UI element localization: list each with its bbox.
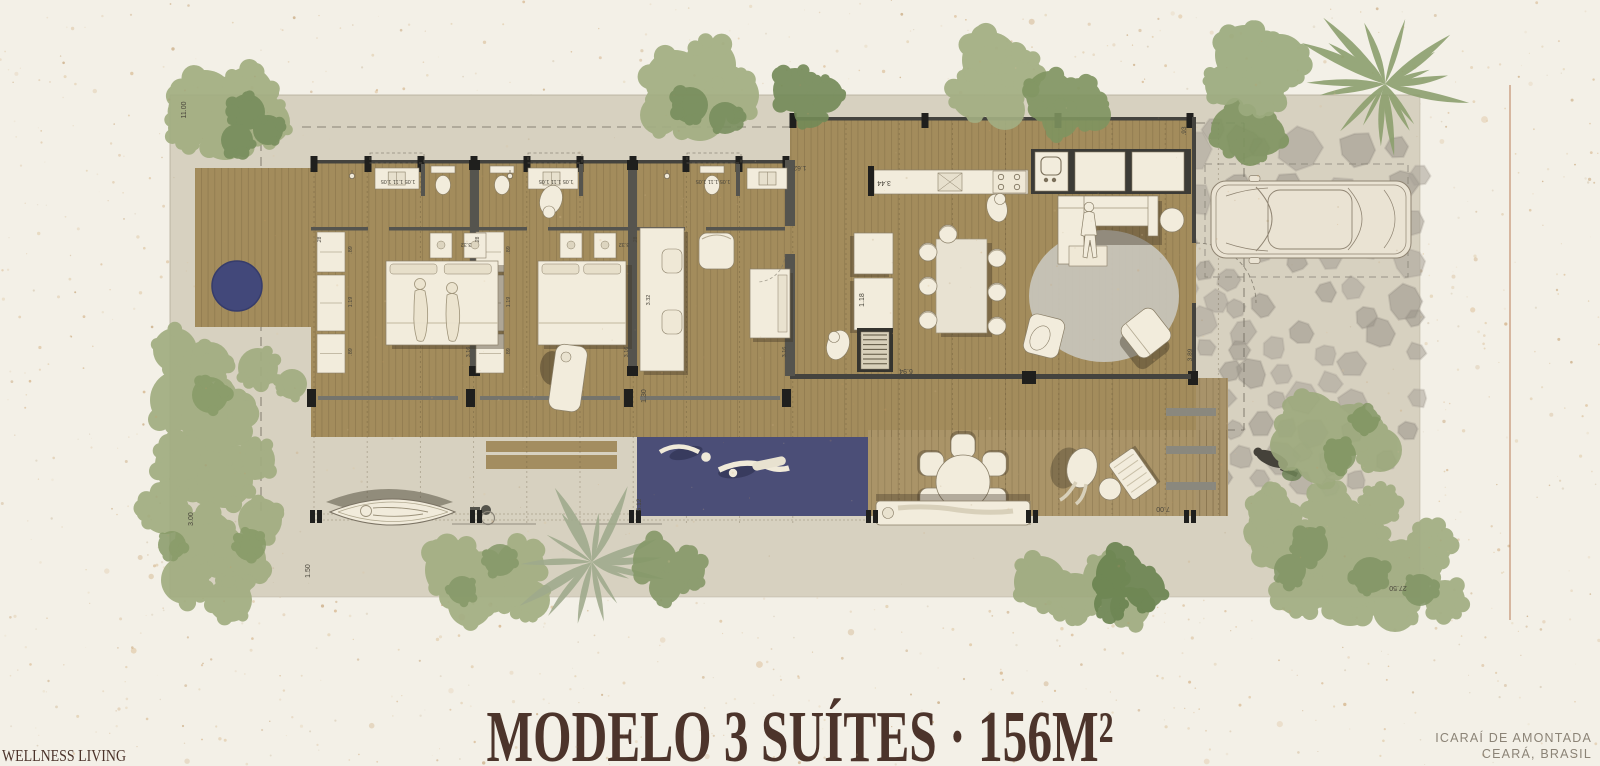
svg-text:CEARÁ, BRASIL: CEARÁ, BRASIL bbox=[1482, 746, 1592, 761]
svg-text:3.16: 3.16 bbox=[466, 347, 472, 358]
svg-text:ICARAÍ DE AMONTADA: ICARAÍ DE AMONTADA bbox=[1435, 730, 1592, 745]
svg-text:1.62: 1.62 bbox=[793, 164, 806, 171]
svg-text:1.30: 1.30 bbox=[641, 389, 648, 403]
svg-text:3.16: 3.16 bbox=[782, 347, 788, 358]
svg-text:.89: .89 bbox=[506, 348, 512, 356]
svg-text:1.18: 1.18 bbox=[859, 293, 866, 307]
svg-text:11.00: 11.00 bbox=[181, 101, 188, 118]
svg-text:1.05 1.11 1.05: 1.05 1.11 1.05 bbox=[539, 178, 574, 184]
svg-text:1.19: 1.19 bbox=[348, 297, 354, 308]
svg-text:3.44: 3.44 bbox=[877, 179, 891, 186]
svg-text:.89: .89 bbox=[348, 246, 354, 254]
svg-text:.28: .28 bbox=[475, 236, 481, 243]
svg-text:.28: .28 bbox=[317, 236, 323, 243]
svg-text:1.50: 1.50 bbox=[305, 564, 312, 578]
svg-text:3.32: 3.32 bbox=[619, 241, 630, 247]
svg-text:1.05 1.11 1.05: 1.05 1.11 1.05 bbox=[381, 178, 416, 184]
svg-text:MODELO 3 SUÍTES · 156M²: MODELO 3 SUÍTES · 156M² bbox=[487, 696, 1114, 766]
svg-text:1.19: 1.19 bbox=[506, 297, 512, 308]
svg-text:1.05 1.11 1.05: 1.05 1.11 1.05 bbox=[696, 178, 731, 184]
svg-text:3.00: 3.00 bbox=[188, 512, 195, 526]
svg-text:5.12: 5.12 bbox=[636, 498, 643, 511]
svg-text:.93: .93 bbox=[1181, 126, 1188, 135]
svg-text:3.32: 3.32 bbox=[646, 295, 652, 306]
svg-text:.28: .28 bbox=[633, 236, 639, 243]
svg-text:3.16: 3.16 bbox=[624, 347, 630, 358]
svg-text:.89: .89 bbox=[506, 246, 512, 254]
svg-text:WELLNESS LIVING: WELLNESS LIVING bbox=[2, 746, 126, 765]
svg-text:7.00: 7.00 bbox=[1156, 505, 1170, 512]
svg-text:.89: .89 bbox=[348, 348, 354, 356]
svg-text:3.89: 3.89 bbox=[1187, 348, 1194, 361]
svg-text:6.94: 6.94 bbox=[899, 367, 913, 374]
